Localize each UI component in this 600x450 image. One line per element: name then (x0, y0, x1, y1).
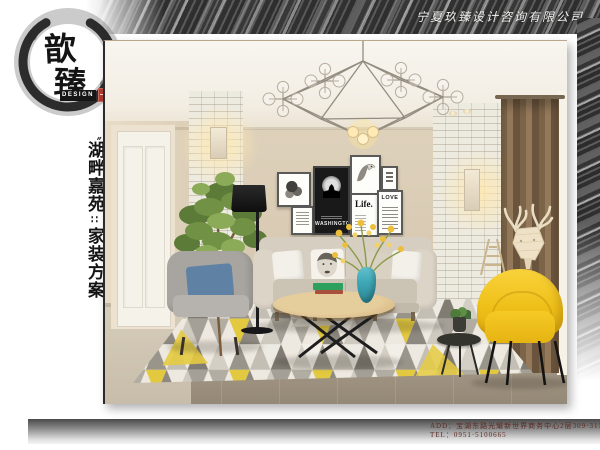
quote-open-mark: 〝 (89, 130, 100, 141)
contact-info: ADD：宝湖东路光耀新世界商务中心2层309·311室 TEL：0951·510… (430, 422, 600, 440)
top-brush-band: 宁夏玖臻设计咨询有限公司 (86, 0, 600, 34)
eagle-print-frame (350, 155, 381, 195)
side-table-top (437, 333, 481, 346)
interior-render-photo: WASHINGTON Life. LOVE (103, 40, 567, 404)
plant-pot (453, 317, 466, 332)
curtain-rod (495, 95, 565, 99)
yellow-chair-seat (485, 311, 555, 343)
tel-value: 0951·5100665 (454, 431, 507, 439)
address-line: ADD：宝湖东路光耀新世界商务中心2层309·311室 (430, 422, 600, 431)
red-book (315, 290, 343, 294)
tel-line: TEL：0951·5100665 (430, 431, 600, 440)
round-coffee-table (273, 291, 395, 318)
lit-bulbs (348, 119, 379, 149)
art-frame-small (381, 166, 398, 191)
life-title: Life. (355, 199, 373, 209)
project-subtitle: 家装方案 (84, 227, 104, 299)
wall-sconce-left (210, 127, 227, 159)
wall-sconce-right (464, 169, 480, 211)
tel-label: TEL： (430, 431, 454, 439)
design-board: { "header": { "company_name": "宁夏玖臻设计咨询有… (0, 0, 600, 450)
geometric-chandelier (255, 41, 470, 151)
logo-design-label: DESIGN (60, 90, 96, 101)
company-name: 宁夏玖臻设计咨询有限公司 (416, 8, 584, 25)
address-label: ADD： (430, 422, 456, 430)
address-value: 宝湖东路光耀新世界商务中心2层309·311室 (456, 422, 600, 430)
armchair-seat (173, 295, 249, 317)
title-separator: ∷ (88, 213, 101, 227)
coffee-table-legs (281, 313, 391, 363)
love-title: LOVE (379, 195, 401, 201)
sofa-leg (411, 312, 415, 321)
sofa-leg (275, 312, 279, 321)
project-title-vertical: 〝湖畔嘉苑∷家装方案 (66, 130, 102, 310)
grey-armchair (163, 251, 257, 339)
tiny-text-lines (293, 212, 312, 225)
door-panel (145, 146, 165, 308)
side-table-leg (459, 343, 461, 377)
green-book (313, 283, 343, 290)
floor-lamp-shade (231, 185, 267, 212)
door-panel (123, 146, 143, 308)
right-brush-band (577, 18, 600, 392)
yellow-chair-legs (481, 341, 567, 385)
wooden-moose-head (501, 203, 555, 271)
art-frame-botanical (277, 172, 311, 207)
yellow-armchair (477, 263, 563, 349)
bottom-brush-band: ADD：宝湖东路光耀新世界商务中心2层309·311室 TEL：0951·510… (28, 419, 600, 444)
art-frame-text (291, 206, 314, 235)
project-name: 湖畔嘉苑 (84, 141, 104, 213)
eagle-sketch-icon (352, 157, 379, 193)
